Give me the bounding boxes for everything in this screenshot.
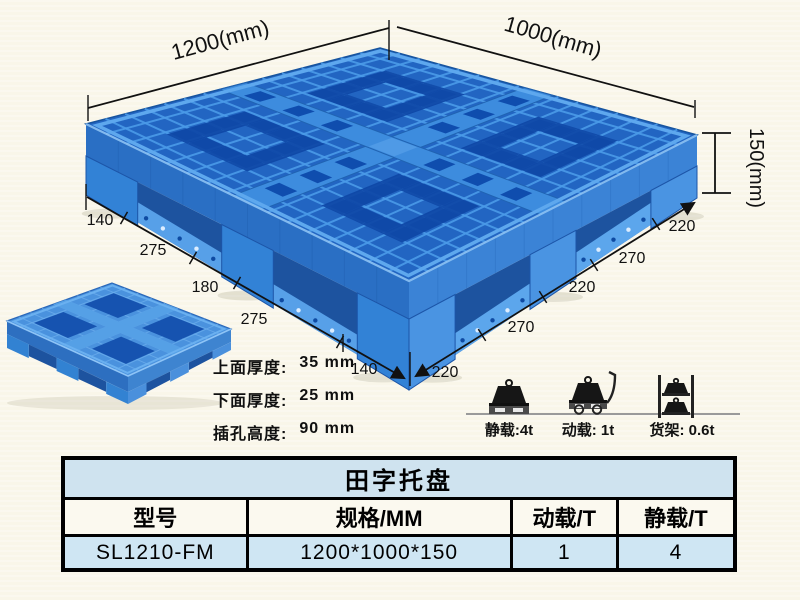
note-label: 下面厚度: [213, 387, 287, 411]
rack-load-icon [658, 375, 694, 418]
note-value: 25 mm [299, 387, 355, 411]
pallet-spec-sheet: 1200(mm) 1000(mm) 150(mm) 140 275 180 27… [0, 0, 800, 600]
height-bracket [702, 133, 731, 193]
cell-dynamic-load: 1 [511, 536, 617, 571]
note-value: 90 mm [299, 420, 355, 444]
col-header-static-load: 静载/T [617, 499, 735, 536]
note-value: 35 mm [299, 354, 355, 378]
dim-segment-label: 220 [432, 364, 459, 381]
table-data-row: SL1210-FM 1200*1000*150 1 4 [63, 536, 735, 571]
note-bottom-thickness: 下面厚度: 25 mm [213, 387, 355, 411]
load-rating-icons: 静载:4t 动载: 1t 货架: 0.6t [466, 372, 740, 439]
table-header-row: 型号 规格/MM 动载/T 静载/T [63, 499, 735, 536]
dim-segment-label: 220 [569, 279, 596, 296]
small-pallet-image [7, 283, 231, 410]
note-top-thickness: 上面厚度: 35 mm [213, 354, 355, 378]
table-title: 田字托盘 [63, 458, 735, 499]
dim-segment-label: 180 [192, 279, 219, 296]
rack-load-label: 货架: 0.6t [649, 421, 714, 439]
table-title-row: 田字托盘 [63, 458, 735, 499]
dim-segment-label: 140 [87, 212, 114, 229]
note-label: 插孔高度: [213, 420, 287, 444]
col-header-dynamic-load: 动载/T [511, 499, 617, 536]
col-header-spec: 规格/MM [247, 499, 511, 536]
dim-label-width: 1000(mm) [501, 11, 604, 63]
note-label: 上面厚度: [213, 354, 287, 378]
dynamic-load-icon [569, 372, 615, 414]
static-load-label: 静载:4t [485, 421, 533, 439]
cell-model: SL1210-FM [63, 536, 247, 571]
dim-label-length: 1200(mm) [168, 15, 271, 65]
dim-label-height: 150(mm) [745, 128, 767, 208]
cell-static-load: 4 [617, 536, 735, 571]
cell-spec: 1200*1000*150 [247, 536, 511, 571]
col-header-model: 型号 [63, 499, 247, 536]
dynamic-load-label: 动载: 1t [562, 421, 615, 439]
dim-segment-label: 270 [619, 250, 646, 267]
spec-table: 田字托盘 型号 规格/MM 动载/T 静载/T SL1210-FM 1200*1… [61, 456, 737, 572]
thickness-notes: 上面厚度: 35 mm 下面厚度: 25 mm 插孔高度: 90 mm [213, 354, 355, 453]
static-load-icon [489, 380, 529, 414]
dim-segment-label: 275 [140, 242, 167, 259]
dim-segment-label: 270 [508, 319, 535, 336]
dim-segment-label: 275 [241, 311, 268, 328]
note-fork-height: 插孔高度: 90 mm [213, 420, 355, 444]
dim-segment-label: 220 [669, 218, 696, 235]
